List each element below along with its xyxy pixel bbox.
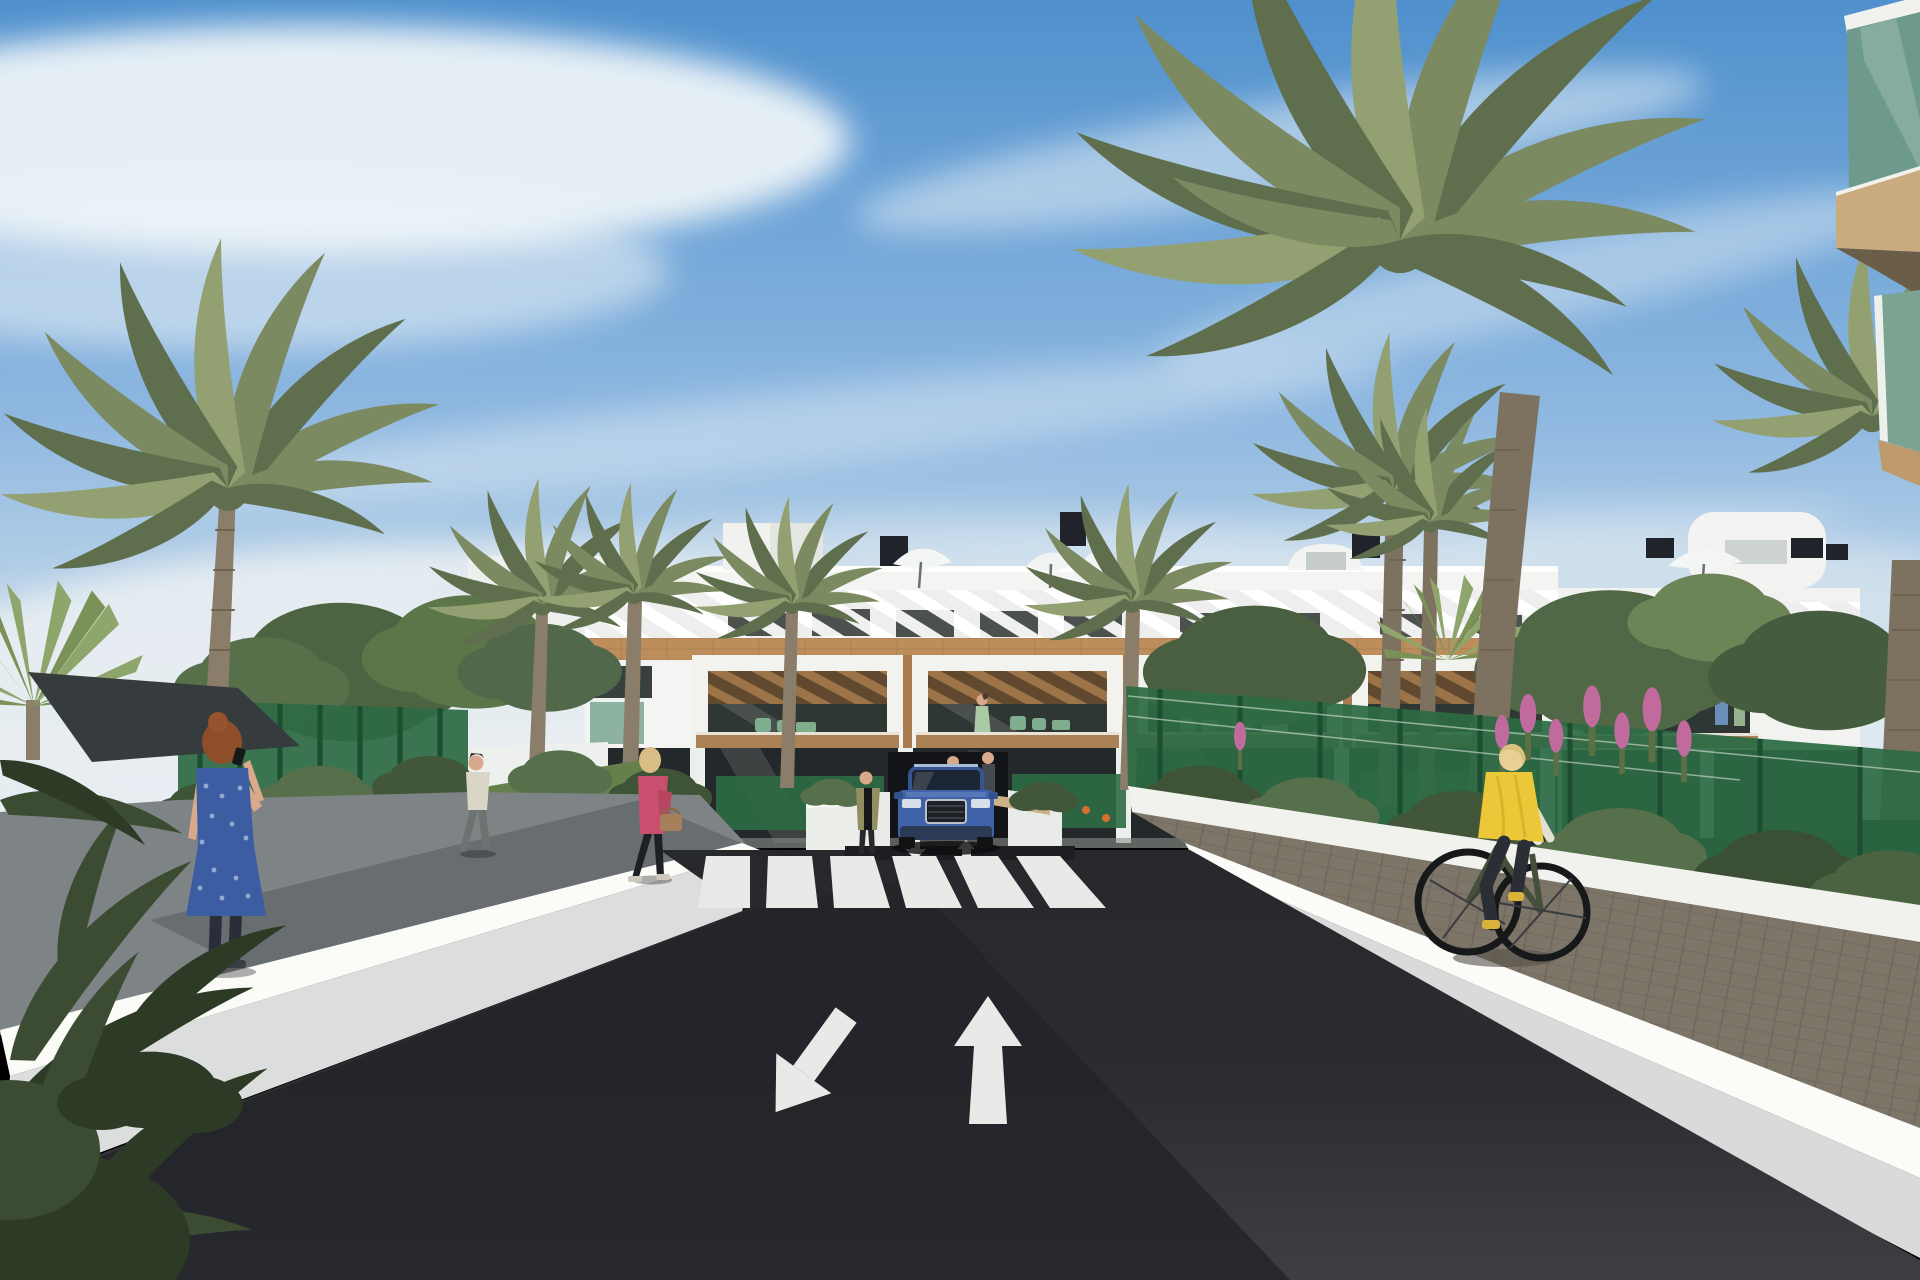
balcony-unit-1 <box>696 660 899 748</box>
balcony-unit-2 <box>916 660 1119 748</box>
blue-suv <box>892 764 1000 855</box>
render-viewport <box>0 0 1920 1280</box>
handbag <box>660 814 682 831</box>
